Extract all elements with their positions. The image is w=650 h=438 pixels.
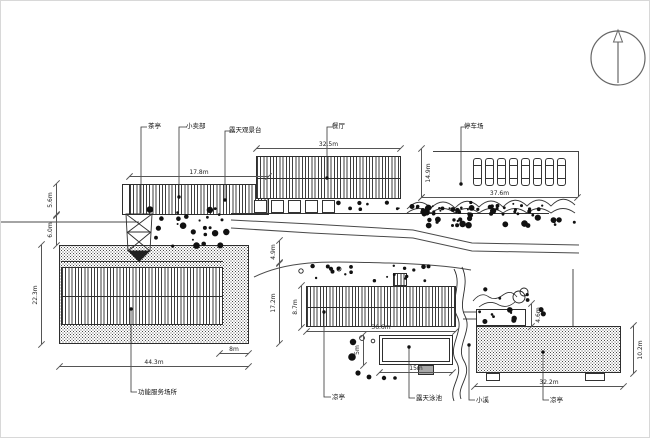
dimension-text: 32.2m [539,379,558,386]
dimension-horizontal: 17.8m [129,176,269,177]
dimension-text: 6.0m [47,222,54,237]
dimension-text: 10.2m [637,340,644,359]
pergola-icon [126,214,152,262]
dimension-text: 17.8m [189,169,208,176]
label-pavilion-left: 凉亭 [332,393,345,401]
label-stream: 小溪 [476,396,489,404]
dimension-text: 44.3m [144,359,163,366]
label-pavilion-right: 凉亭 [550,396,563,404]
site-plan-canvas: 17.8m32.5m37.6m44.3m8m36.6m15m32.2m5.6m6… [0,0,650,438]
car-icon [473,158,482,186]
dimension-horizontal: 37.6m [421,197,578,198]
car-icon [521,158,530,186]
dimension-vertical: 14.9m [421,149,422,197]
dimension-vertical: 17.2m [279,263,280,343]
dimension-vertical: 22.3m [41,245,42,344]
dimension-vertical: 4.6m [531,304,532,326]
dimension-horizontal: 44.3m [59,366,249,367]
car-icon [557,158,566,186]
dimension-horizontal: 15m [379,372,453,373]
dimension-horizontal: 36.6m [306,331,456,332]
label-service-area: 功能服务场所 [138,388,177,396]
label-pool: 露天泳池 [416,394,442,402]
dimension-text: 15m [409,365,422,372]
label-teahouse: 茶亭 [148,122,161,130]
dimension-text: 4.9m [270,244,277,259]
car-icon [485,158,494,186]
label-restaurant: 餐厅 [332,122,345,130]
label-shop: 小卖部 [186,122,206,130]
dimension-text: 37.6m [490,190,509,197]
car-icon [509,158,518,186]
terrain-lines [1,220,579,326]
dimension-vertical: 5.6m [56,184,57,215]
dimension-vertical: 5m [363,335,364,365]
dimension-text: 4.6m [535,307,542,322]
dimension-text: 22.3m [32,285,39,304]
dimension-horizontal: 32.2m [474,386,624,387]
dimension-text: 5m [354,345,361,355]
dimension-text: 32.5m [319,141,338,148]
label-parking-lot: 停车场 [464,122,484,130]
dimension-text: 8.7m [292,299,299,314]
dimension-vertical: 10.2m [633,326,634,373]
car-icon [545,158,554,186]
dimension-text: 5.6m [47,192,54,207]
car-icon [533,158,542,186]
rock-squiggles [473,292,517,307]
dimension-horizontal: 32.5m [256,148,401,149]
dimension-text: 8m [229,346,239,353]
dimension-vertical: 8.7m [301,286,302,327]
label-viewing-deck: 露天观景台 [229,126,262,134]
dimension-text: 17.2m [270,293,277,312]
drawing-overlay [1,1,650,438]
dimension-text: 36.6m [371,324,390,331]
north-arrow-icon [591,30,645,85]
car-icon [497,158,506,186]
dimension-vertical: 6.0m [56,215,57,245]
dimension-horizontal: 8m [219,353,249,354]
dimension-text: 14.9m [425,163,432,182]
stream-lines [453,267,467,401]
